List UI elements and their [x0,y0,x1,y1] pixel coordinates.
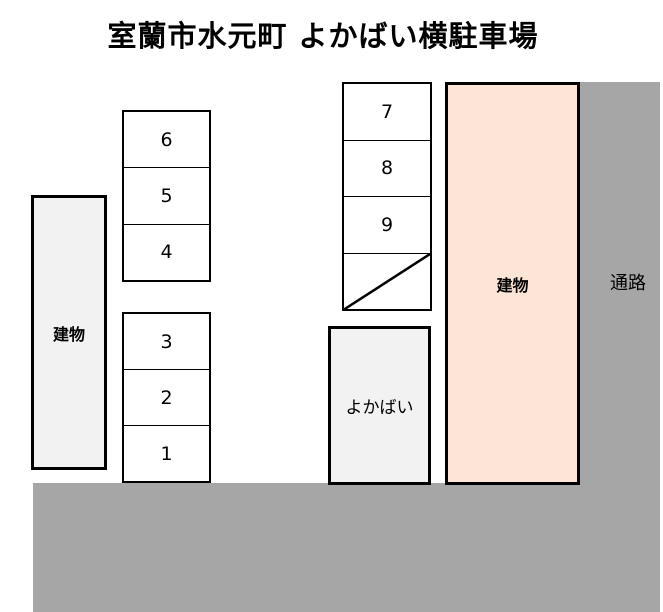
building-right-label: 建物 [496,272,528,296]
parking-spot-5: 5 [124,168,209,224]
building-left: 建物 [31,195,107,470]
parking-spot-3: 3 [124,314,209,370]
page-title: 室蘭市水元町 よかばい横駐車場 [80,13,566,55]
parking-spot-3-label: 3 [160,331,172,353]
building-right: 建物 [445,82,580,485]
parking-column-upper-left: 6 5 4 [122,110,211,282]
parking-spot-8: 8 [344,141,430,198]
parking-column-lower-left: 3 2 1 [122,312,211,483]
building-left-label: 建物 [53,321,85,345]
parking-spot-7: 7 [344,84,430,141]
parking-spot-9-label: 9 [381,214,393,236]
road-label: 通路 [596,269,660,295]
parking-spot-7-label: 7 [381,101,393,123]
parking-spot-4: 4 [124,225,209,280]
diagonal-line-icon [344,254,430,310]
parking-spot-9: 9 [344,197,430,254]
parking-column-middle: 7 8 9 [342,82,432,311]
yokabai-box: よかばい [328,326,431,485]
parking-spot-8-label: 8 [381,157,393,179]
parking-lot-map: 室蘭市水元町 よかばい横駐車場 通路 建物 6 5 4 3 2 1 7 [0,0,663,612]
parking-spot-5-label: 5 [160,185,172,207]
parking-spot-blocked [344,254,430,310]
parking-spot-1: 1 [124,426,209,481]
parking-spot-4-label: 4 [160,241,172,263]
yokabai-label: よかばい [346,393,414,418]
parking-spot-6-label: 6 [160,129,172,151]
parking-spot-6: 6 [124,112,209,168]
road-bottom-strip [33,483,660,612]
parking-spot-1-label: 1 [160,443,172,465]
parking-spot-2-label: 2 [160,387,172,409]
parking-spot-2: 2 [124,370,209,426]
